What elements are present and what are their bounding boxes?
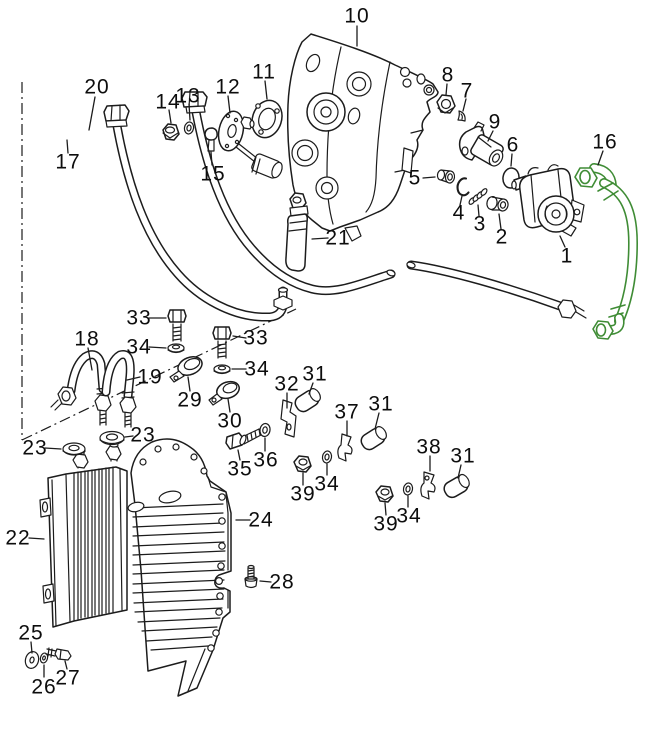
part-label[interactable]: 9 <box>489 112 502 133</box>
part-label[interactable]: 39 <box>290 484 315 505</box>
part-label[interactable]: 7 <box>461 81 474 102</box>
part-label[interactable]: 22 <box>5 528 30 549</box>
part-label[interactable]: 26 <box>31 677 56 698</box>
parts-diagram: 1011121314152017879616543212133343334181… <box>0 0 645 729</box>
part-label[interactable]: 18 <box>74 329 99 350</box>
part-label[interactable]: 37 <box>334 402 359 423</box>
part-label[interactable]: 25 <box>18 623 43 644</box>
part-label[interactable]: 24 <box>248 510 273 531</box>
part-label[interactable]: 34 <box>244 359 269 380</box>
part-label[interactable]: 31 <box>302 364 327 385</box>
part-label[interactable]: 8 <box>442 65 455 86</box>
part-label[interactable]: 6 <box>507 135 520 156</box>
part-label[interactable]: 2 <box>496 227 509 248</box>
part-label[interactable]: 10 <box>344 6 369 27</box>
part-label[interactable]: 3 <box>474 214 487 235</box>
part-label[interactable]: 31 <box>368 394 393 415</box>
part-label[interactable]: 28 <box>269 572 294 593</box>
part-label[interactable]: 5 <box>409 168 422 189</box>
part-label[interactable]: 36 <box>253 450 278 471</box>
part-label[interactable]: 39 <box>373 514 398 535</box>
part-label[interactable]: 19 <box>137 367 162 388</box>
part-label[interactable]: 38 <box>416 437 441 458</box>
part-label[interactable]: 32 <box>274 374 299 395</box>
part-label[interactable]: 12 <box>215 77 240 98</box>
part-label[interactable]: 16 <box>592 132 617 153</box>
part-label[interactable]: 21 <box>325 228 350 249</box>
part-label[interactable]: 33 <box>126 308 151 329</box>
part-labels-layer: 1011121314152017879616543212133343334181… <box>0 0 645 729</box>
part-label[interactable]: 23 <box>22 438 47 459</box>
part-label[interactable]: 34 <box>126 337 151 358</box>
part-label[interactable]: 31 <box>450 446 475 467</box>
part-label[interactable]: 15 <box>200 164 225 185</box>
part-label[interactable]: 29 <box>177 390 202 411</box>
part-label[interactable]: 4 <box>453 203 466 224</box>
part-label[interactable]: 14 <box>155 92 180 113</box>
part-label[interactable]: 34 <box>314 474 339 495</box>
part-label[interactable]: 27 <box>55 668 80 689</box>
part-label[interactable]: 20 <box>84 77 109 98</box>
part-label[interactable]: 35 <box>227 459 252 480</box>
part-label[interactable]: 11 <box>252 62 276 83</box>
part-label[interactable]: 23 <box>130 425 155 446</box>
part-label[interactable]: 33 <box>243 328 268 349</box>
part-label[interactable]: 30 <box>217 411 242 432</box>
part-label[interactable]: 1 <box>561 246 574 267</box>
part-label[interactable]: 17 <box>55 152 80 173</box>
part-label[interactable]: 34 <box>396 506 421 527</box>
